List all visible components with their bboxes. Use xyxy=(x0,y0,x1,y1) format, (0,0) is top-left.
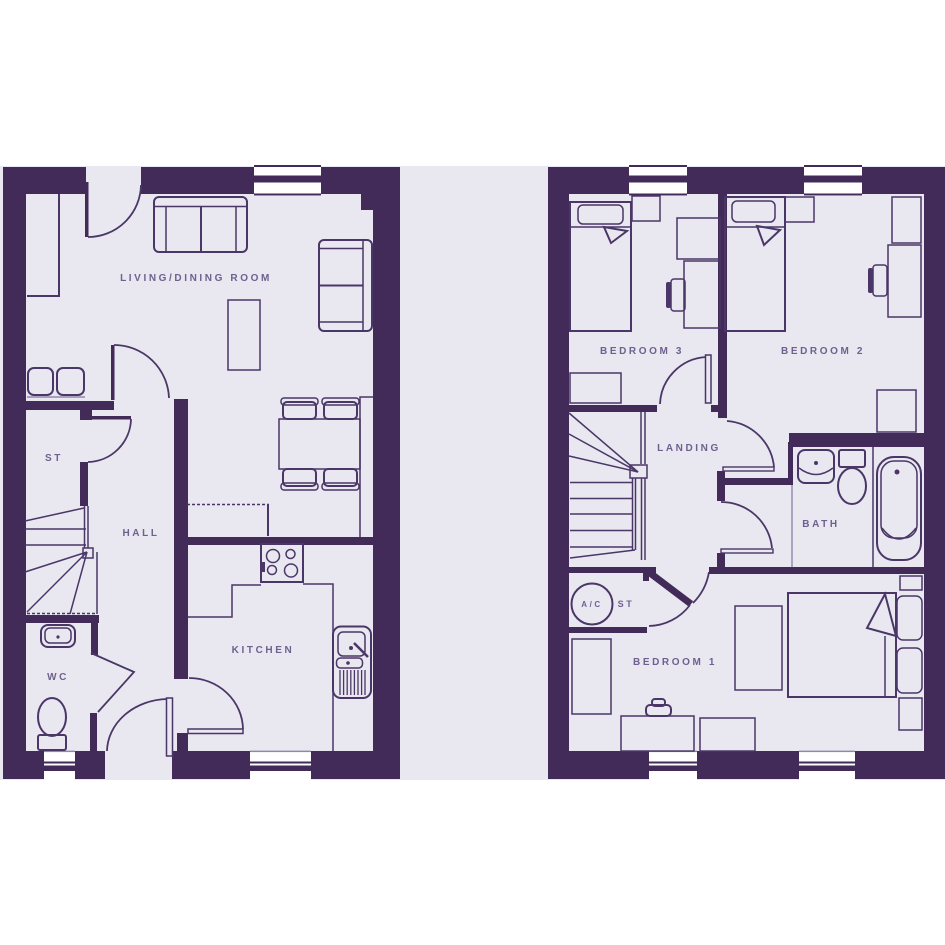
svg-text:BATH: BATH xyxy=(802,519,839,530)
svg-text:LANDING: LANDING xyxy=(657,443,721,454)
svg-text:HALL: HALL xyxy=(122,528,159,539)
svg-text:BEDROOM 3: BEDROOM 3 xyxy=(600,346,684,357)
svg-text:A/C: A/C xyxy=(581,600,603,609)
svg-text:ST: ST xyxy=(45,453,63,464)
svg-text:WC: WC xyxy=(47,672,69,683)
svg-text:ST: ST xyxy=(618,599,635,609)
svg-text:LIVING/DINING ROOM: LIVING/DINING ROOM xyxy=(120,273,272,284)
svg-text:BEDROOM 1: BEDROOM 1 xyxy=(633,657,717,668)
svg-text:KITCHEN: KITCHEN xyxy=(232,645,295,656)
svg-text:BEDROOM 2: BEDROOM 2 xyxy=(781,346,865,357)
